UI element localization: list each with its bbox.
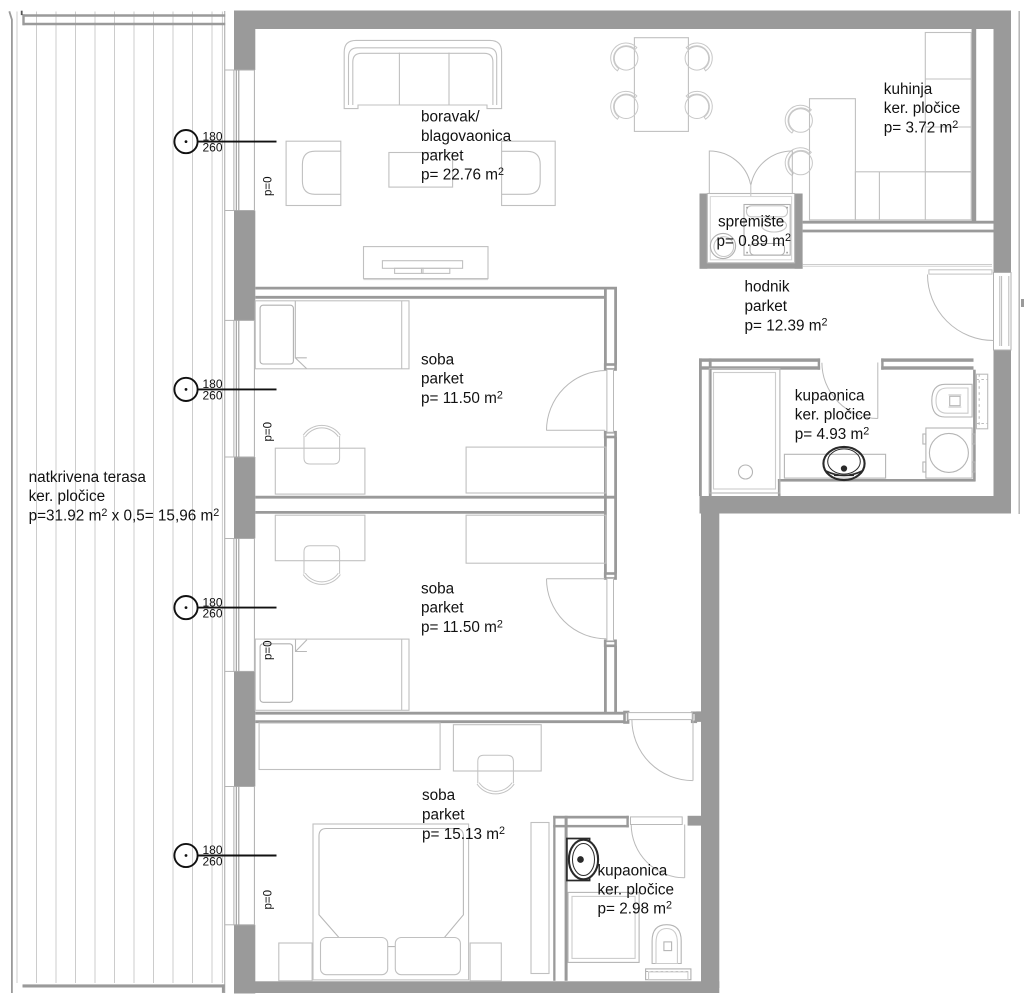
svg-text:parket: parket [745,298,788,315]
svg-text:p= 4.93 m2: p= 4.93 m2 [795,425,869,443]
svg-text:p= 3.72 m2: p= 3.72 m2 [884,119,958,137]
svg-text:p=0: p=0 [263,640,275,660]
svg-text:p=0: p=0 [263,890,275,910]
svg-text:kupaonica: kupaonica [795,387,865,404]
svg-text:soba: soba [421,351,455,368]
svg-text:spremište: spremište [718,214,784,231]
svg-text:p= 2.98 m2: p= 2.98 m2 [598,900,672,918]
svg-text:p= 12.39 m2: p= 12.39 m2 [745,317,828,335]
svg-text:ker. pločice: ker. pločice [29,488,106,505]
svg-text:p= 0.89 m2: p= 0.89 m2 [717,232,791,250]
svg-text:p= 15.13 m2: p= 15.13 m2 [422,825,505,843]
svg-text:260: 260 [203,607,223,621]
svg-text:parket: parket [421,147,464,164]
svg-text:p=0: p=0 [263,422,275,442]
svg-text:parket: parket [422,806,465,823]
svg-text:boravak/: boravak/ [421,109,480,126]
svg-text:kuhinja: kuhinja [884,81,933,98]
svg-text:ker. pločice: ker. pločice [598,882,675,899]
svg-text:parket: parket [421,600,464,617]
svg-text:p= 11.50 m2: p= 11.50 m2 [421,618,503,636]
svg-text:hodnik: hodnik [745,279,790,296]
svg-text:natkrivena terasa: natkrivena terasa [29,469,147,486]
svg-text:ker. pločice: ker. pločice [795,407,872,424]
svg-text:260: 260 [203,855,223,869]
svg-text:p=0: p=0 [263,176,275,196]
svg-text:p=31.92 m2 x 0,5= 15,96 m2: p=31.92 m2 x 0,5= 15,96 m2 [29,507,220,525]
svg-text:p= 11.50 m2: p= 11.50 m2 [421,389,503,407]
svg-text:soba: soba [421,580,455,597]
svg-text:kupaonica: kupaonica [598,863,668,880]
svg-text:soba: soba [422,787,456,804]
svg-text:blagovaonica: blagovaonica [421,128,512,145]
svg-text:260: 260 [203,388,223,402]
svg-text:260: 260 [203,141,223,155]
svg-text:ker. pločice: ker. pločice [884,100,961,117]
svg-text:parket: parket [421,371,464,388]
svg-text:p= 22.76 m2: p= 22.76 m2 [421,166,504,184]
